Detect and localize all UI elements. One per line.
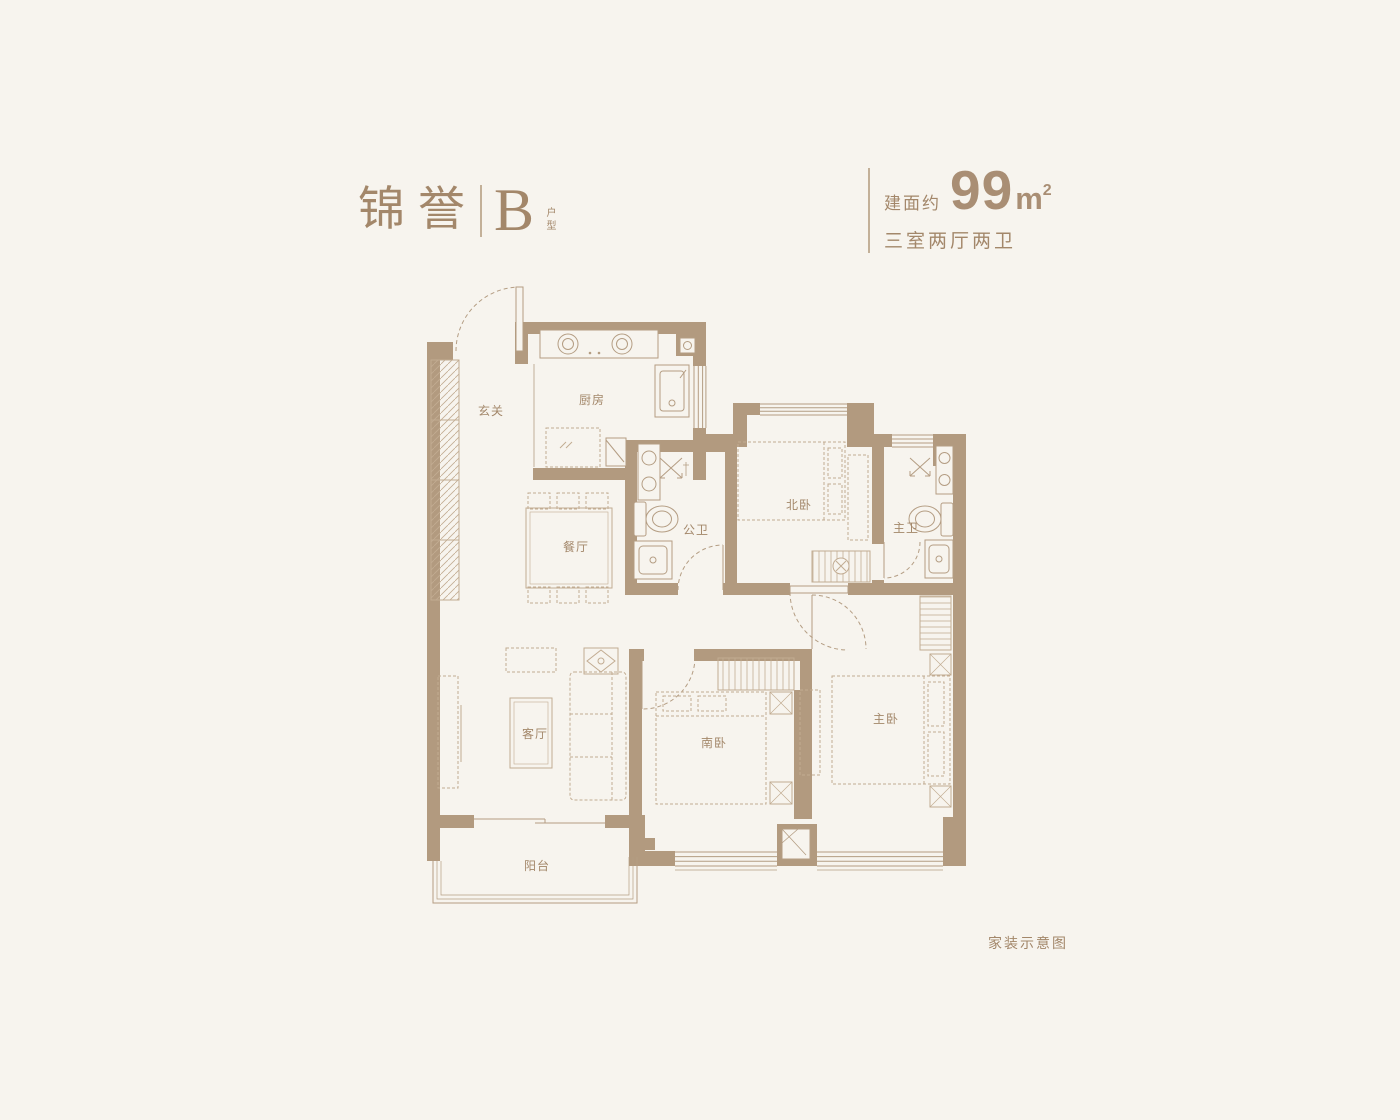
master-bedroom-door-arc [812,595,866,649]
room-label-kitchen: 厨房 [579,392,605,407]
master-bath-sink-icon [936,446,953,494]
room-label-master-bedroom: 主卧 [873,712,899,726]
nightstands-south [770,692,792,804]
wardrobe-south [718,658,794,690]
room-label-south-bedroom: 南卧 [701,735,727,750]
stove-icon [540,330,658,358]
master-shower-tray-icon [925,540,953,578]
kitchen-sink-icon [655,365,689,417]
public-bath-fixtures [634,444,689,579]
flue-icon [680,338,695,353]
public-bath-door-arc [678,545,723,590]
balcony-sliding-door [474,819,605,823]
floor-plan-page: { "header": { "project_name": "锦誉", "uni… [0,0,1400,1120]
toilet-icon [634,502,678,536]
footer-note: 家装示意图 [988,933,1068,953]
entry-closet [431,360,459,600]
ceiling-fan-icon [584,648,618,674]
bed-master [832,676,950,784]
room-label-balcony: 阳台 [524,858,550,873]
entry-door-arc [456,287,523,351]
kitchen-door [606,438,626,466]
room-label-entry: 玄关 [478,403,504,418]
shower-head-icon [660,458,689,478]
north-bedroom-furniture [738,442,870,582]
room-label-dining: 餐厅 [563,539,589,554]
sofa [570,672,626,800]
kitchen-island [546,428,600,467]
room-label-master-bath: 主卫 [893,521,919,535]
cabinet [506,648,556,672]
living-furniture [438,648,626,800]
master-bath-door-arc [884,542,920,578]
nightstand-north [848,455,868,540]
master-shower-head-icon [910,458,930,476]
south-bedroom-furniture [656,658,794,804]
tv-console [438,676,458,788]
master-bedroom-furniture [800,596,951,807]
room-label-public-bath: 公卫 [683,523,709,537]
floor-plan-drawing: 玄关 厨房 餐厅 公卫 北卧 主卫 客厅 南卧 主卧 阳台 [0,0,1400,1120]
dresser-north [812,551,870,582]
wardrobe-master [920,596,951,650]
south-bedroom-door-arc [642,657,695,709]
room-label-north-bedroom: 北卧 [786,498,812,512]
corner-bay-detail [782,829,810,859]
room-label-living: 客厅 [522,726,548,741]
washer-icon [638,444,660,500]
shower-tray-icon [634,541,672,579]
